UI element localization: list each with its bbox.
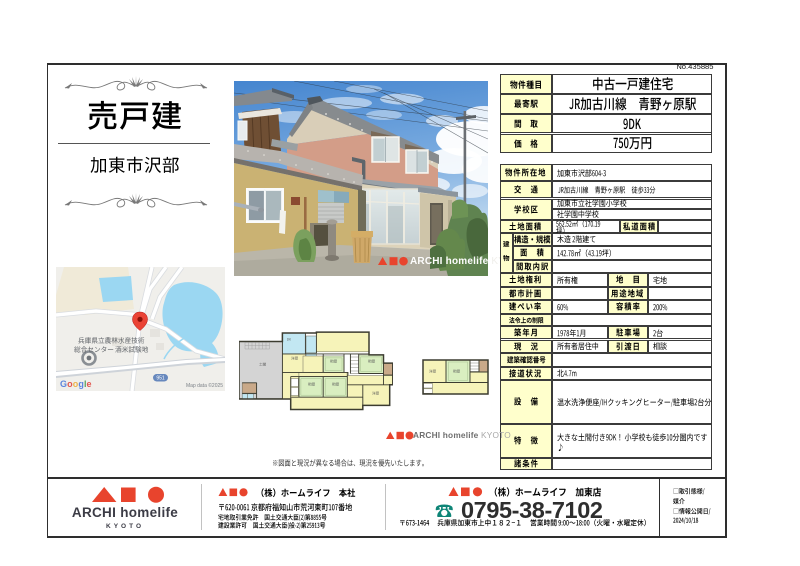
svg-text:951: 951 <box>156 376 165 382</box>
